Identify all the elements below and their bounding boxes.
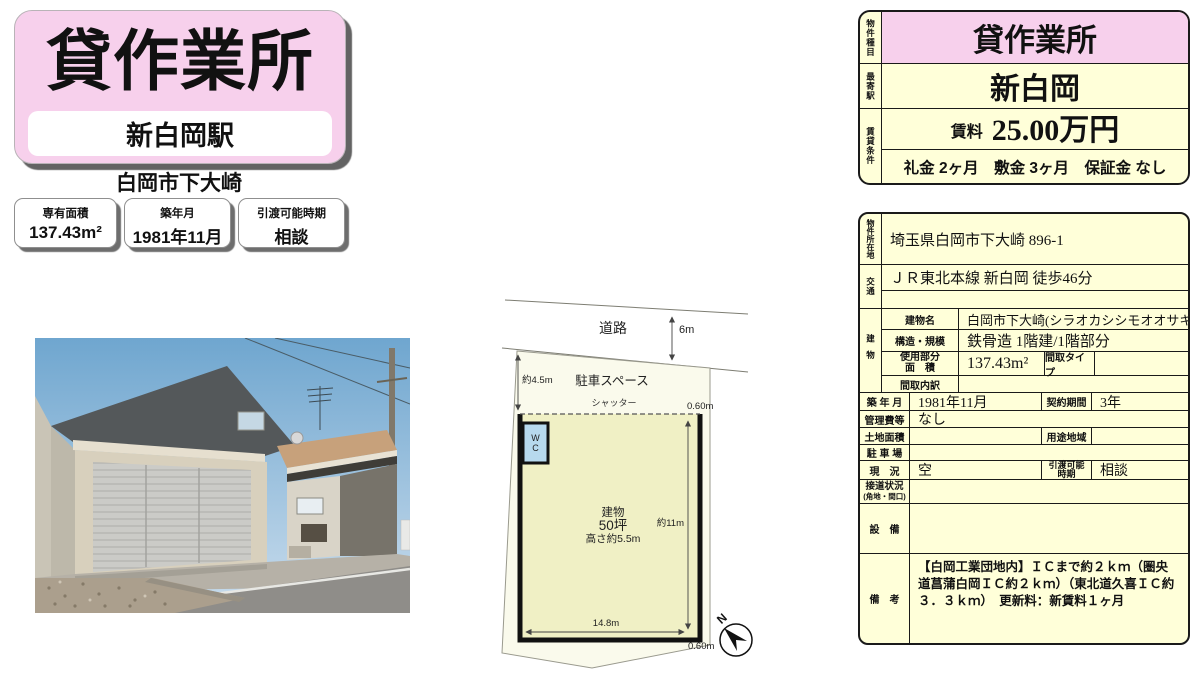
building-name: 白岡市下大崎(シラオカシシモオオサキ) [959,309,1188,329]
mgmt-label: 管理費等 [860,411,910,427]
satellite-dish [291,432,303,444]
built-value: 1981年11月 [910,393,1042,410]
flyer-page: 貸作業所 新白岡駅 白岡市下大崎 専有面積 137.43m² 築年月 1981年… [0,0,1200,692]
rent-label: 賃料 [951,118,983,142]
page-title: 貸作業所 [15,11,345,111]
built-label: 築 年 月 [860,393,910,410]
summary-terms-label: 賃貸条件 [860,109,882,183]
madori-type-label: 間取タイプ [1045,352,1095,375]
madori-type-value [1095,352,1188,375]
summary-table: 物件種目 貸作業所 最寄駅 新白岡 賃貸条件 賃料 25.00万円 礼金 2ヶ月… [858,10,1190,185]
chip-area: 専有面積 137.43m² [14,198,117,248]
entrance-steps [289,546,311,558]
road-status-label: 接道状況 (角地・間口) [860,480,910,503]
madori-detail-label: 間取内訳 [882,376,959,392]
summary-type-label: 物件種目 [860,12,882,63]
road-line-top [505,300,748,314]
north-label: N [714,611,730,627]
gable-window [238,412,264,430]
land-value [910,428,1042,444]
chip-label: 引渡可能時期 [239,205,344,221]
chip-handover: 引渡可能時期 相談 [238,198,345,248]
gap-bottom-label: 0.60m [688,641,714,652]
location-text: 白岡市下大崎 [14,167,344,197]
equip-value [910,504,1188,553]
details-table: 物件所在地 埼玉県白岡市下大崎 896-1 交通 ＪＲ東北本線 新白岡 徒歩46… [858,212,1190,645]
contract-label: 契約期間 [1042,393,1092,410]
left-wall-face [51,426,75,580]
road-status-value [910,480,1188,503]
parking-space-label: 駐車スペース [575,373,649,388]
transport-label: 交通 [860,265,882,308]
contract-value: 3年 [1092,393,1188,410]
carport-shadow [340,464,397,556]
handover-label: 引渡可能 時期 [1042,461,1092,479]
chip-value: 1981年11月 [125,223,230,248]
used-area-value: 137.43m² [959,352,1045,375]
chip-label: 専有面積 [15,205,116,221]
chip-value: 137.43m² [15,223,116,243]
address-label: 物件所在地 [860,214,882,264]
parking-depth-label: 約4.5m [522,374,553,386]
left-wall [35,396,51,584]
gap-top-label: 0.60m [687,401,713,412]
road-label: 道路 [599,320,627,336]
address-value: 埼玉県白岡市下大崎 896-1 [882,214,1188,264]
floor-plan: 道路 6m 駐車スペース 約4.5m シャッター 0.60m W C 建物 50… [480,292,780,692]
remarks-value: 【白岡工業団地内】ＩＣまで約２ｋｍ（圏央道菖蒲白岡ＩＣ約２ｋｍ）（東北道久喜ＩＣ… [910,554,1188,643]
building-name-label: 建物名 [882,309,959,329]
status-value: 空 [910,461,1042,479]
side-length-label: 約11m [657,517,684,529]
madori-detail-value [959,376,1188,392]
zoning-label: 用途地域 [1042,428,1092,444]
remarks-label: 備 考 [860,554,910,643]
zoning-value [1092,428,1188,444]
building-size-label: 50坪 [599,518,628,533]
road-width-label: 6m [679,324,694,336]
land-label: 土地面積 [860,428,910,444]
front-length-label: 14.8m [593,618,619,629]
structure-label: 構造・規模 [882,330,959,351]
building-height-label: 高さ約5.5m [586,532,641,545]
summary-station-label: 最寄駅 [860,64,882,108]
wc-label-c: C [532,443,539,453]
building-word-label: 建物 [602,505,625,519]
status-label: 現 況 [860,461,910,479]
chip-value: 相談 [239,223,344,248]
right-window [297,498,323,514]
ac-unit [301,524,327,542]
north-compass-icon: N [714,611,752,656]
property-type: 貸作業所 [882,12,1188,63]
header-card: 貸作業所 新白岡駅 [14,10,346,164]
mgmt-value: なし [910,411,1188,427]
shutter-door [93,462,251,572]
chip-built: 築年月 1981年11月 [124,198,231,248]
wc-label-w: W [531,433,540,443]
parked-vehicle [401,520,410,550]
handover-value: 相談 [1092,461,1188,479]
parking-value [910,445,1188,460]
transport-line2 [882,291,1188,308]
parking-label: 駐 車 場 [860,445,910,460]
used-area-label: 使用部分 面 積 [882,352,959,375]
rent-value: 25.00万円 [992,111,1120,150]
station-name: 新白岡駅 [28,111,332,156]
transport-line1: ＪＲ東北本線 新白岡 徒歩46分 [882,265,1188,291]
fees-line: 礼金 2ヶ月 敷金 3ヶ月 保証金 なし [882,150,1188,183]
chip-label: 築年月 [125,205,230,221]
building-label: 建物 [860,309,882,392]
shutter-label: シャッター [591,398,636,408]
property-photo [35,338,410,613]
nearest-station: 新白岡 [882,64,1188,108]
equip-label: 設 備 [860,504,910,553]
